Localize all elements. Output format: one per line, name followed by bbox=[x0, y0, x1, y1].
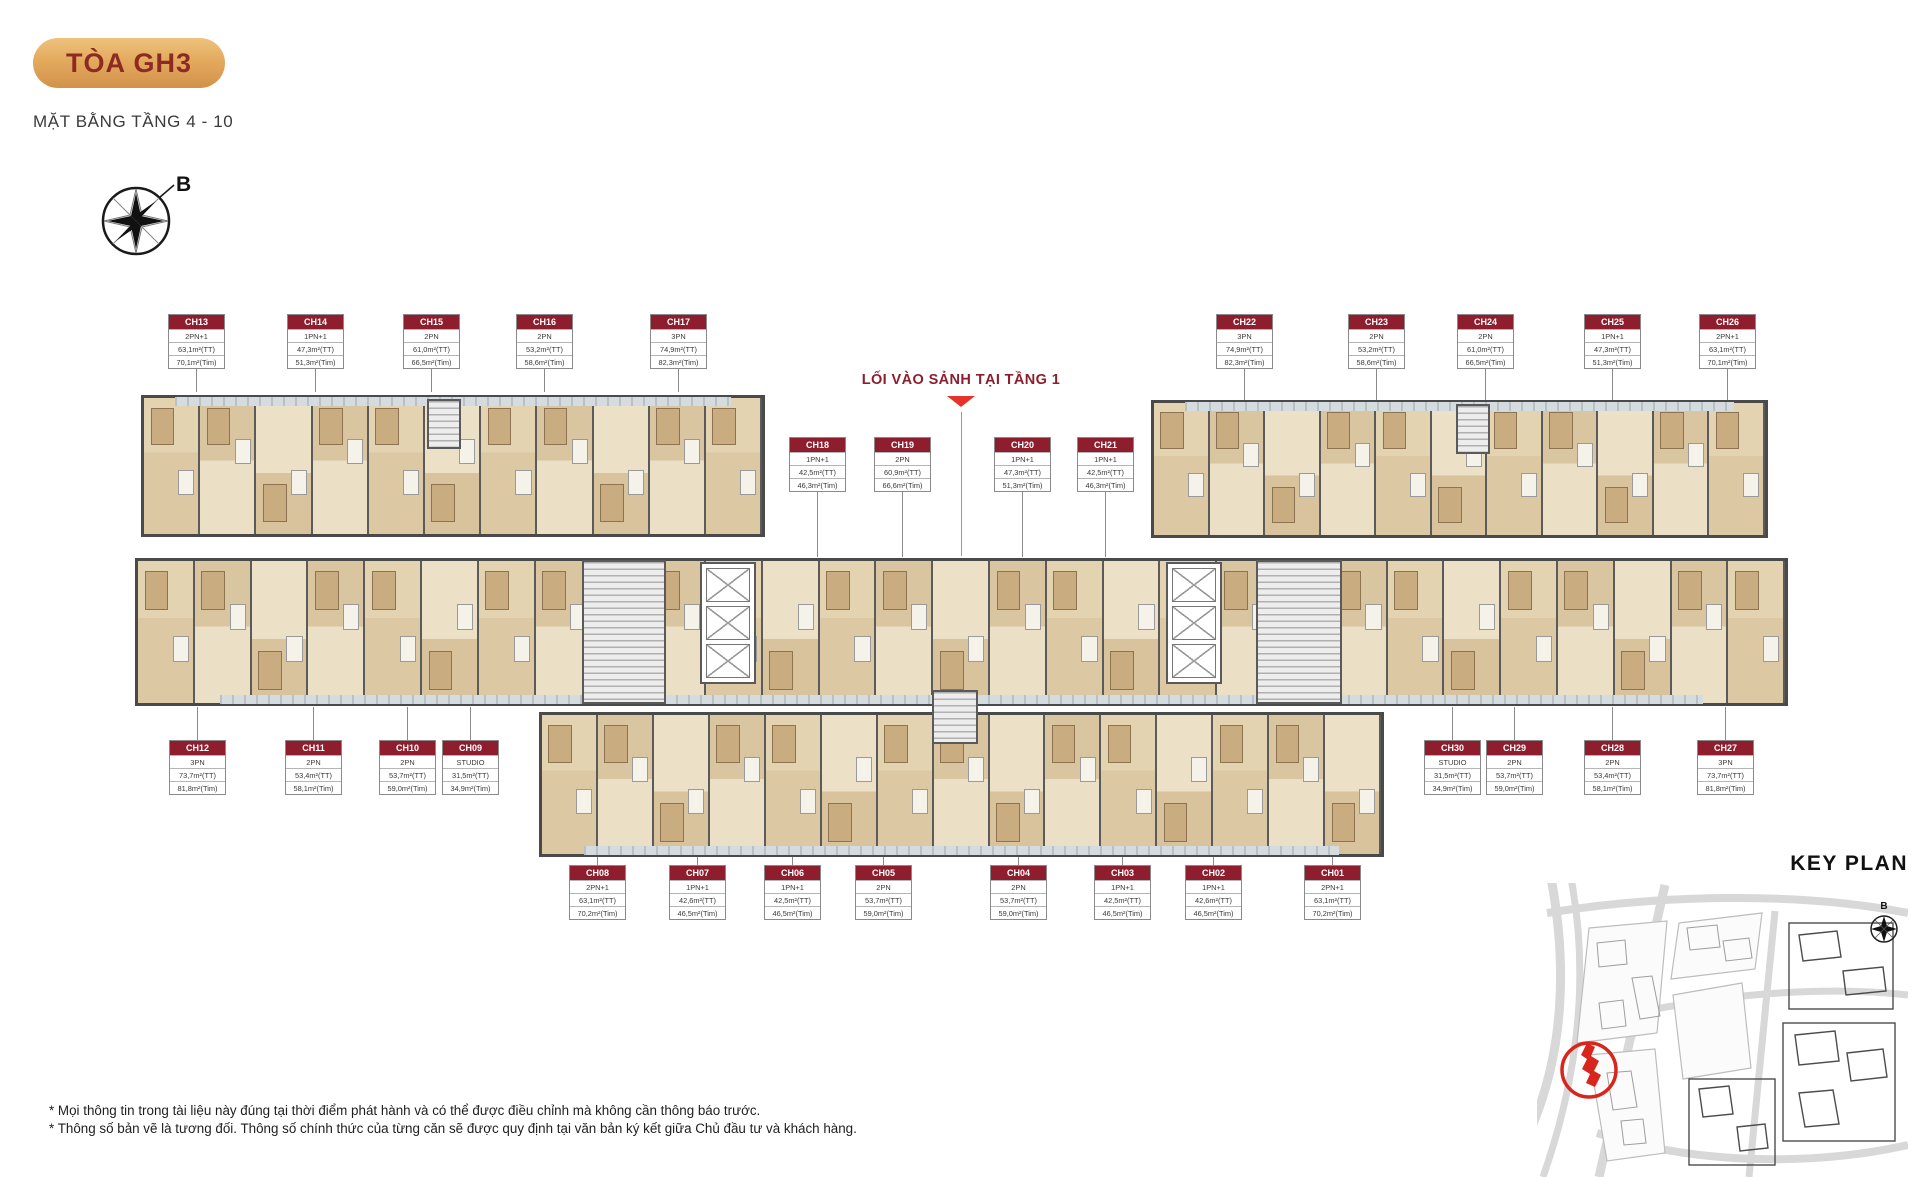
unit-type: 2PN+1 bbox=[1305, 880, 1360, 893]
unit-label-CH20: CH201PN+147,3m²(TT)51,3m²(Tim) bbox=[994, 437, 1051, 492]
unit-area-tim: 34,9m²(Tim) bbox=[443, 781, 498, 794]
unit-id: CH22 bbox=[1217, 315, 1272, 329]
unit-type: 1PN+1 bbox=[1078, 452, 1133, 465]
unit-area-tim: 58,6m²(Tim) bbox=[517, 355, 572, 368]
unit-connector-CH06 bbox=[792, 857, 793, 865]
unit-area-tt: 53,7m²(TT) bbox=[1487, 768, 1542, 781]
unit-area-tt: 47,3m²(TT) bbox=[288, 342, 343, 355]
unit-id: CH19 bbox=[875, 438, 930, 452]
unit-id: CH21 bbox=[1078, 438, 1133, 452]
unit-id: CH14 bbox=[288, 315, 343, 329]
unit-area-tt: 31,5m²(TT) bbox=[443, 768, 498, 781]
unit-id: CH07 bbox=[670, 866, 725, 880]
unit-area-tt: 47,3m²(TT) bbox=[995, 465, 1050, 478]
unit-id: CH20 bbox=[995, 438, 1050, 452]
unit-type: 2PN bbox=[875, 452, 930, 465]
unit-label-CH17: CH173PN74,9m²(TT)82,3m²(Tim) bbox=[650, 314, 707, 369]
unit-connector-CH12 bbox=[197, 707, 198, 740]
unit-area-tim: 34,9m²(Tim) bbox=[1425, 781, 1480, 794]
unit-area-tt: 42,6m²(TT) bbox=[670, 893, 725, 906]
unit-id: CH15 bbox=[404, 315, 459, 329]
unit-label-CH25: CH251PN+147,3m²(TT)51,3m²(Tim) bbox=[1584, 314, 1641, 369]
floor-plan-page: TÒA GH3 MẶT BẰNG TẦNG 4 - 10 B LỐI VÀO S… bbox=[0, 0, 1920, 1177]
unit-label-CH07: CH071PN+142,6m²(TT)46,5m²(Tim) bbox=[669, 865, 726, 920]
unit-type: 2PN+1 bbox=[169, 329, 224, 342]
unit-type: 2PN bbox=[286, 755, 341, 768]
unit-type: 1PN+1 bbox=[790, 452, 845, 465]
unit-area-tim: 59,0m²(Tim) bbox=[1487, 781, 1542, 794]
unit-label-CH10: CH102PN53,7m²(TT)59,0m²(Tim) bbox=[379, 740, 436, 795]
unit-label-CH27: CH273PN73,7m²(TT)81,8m²(Tim) bbox=[1697, 740, 1754, 795]
unit-type: 2PN+1 bbox=[570, 880, 625, 893]
unit-label-CH14: CH141PN+147,3m²(TT)51,3m²(Tim) bbox=[287, 314, 344, 369]
unit-area-tim: 70,1m²(Tim) bbox=[1700, 355, 1755, 368]
unit-id: CH09 bbox=[443, 741, 498, 755]
unit-id: CH11 bbox=[286, 741, 341, 755]
unit-label-CH01: CH012PN+163,1m²(TT)70,2m²(Tim) bbox=[1304, 865, 1361, 920]
unit-type: 2PN bbox=[380, 755, 435, 768]
unit-area-tt: 63,1m²(TT) bbox=[169, 342, 224, 355]
unit-id: CH29 bbox=[1487, 741, 1542, 755]
unit-area-tim: 81,8m²(Tim) bbox=[170, 781, 225, 794]
unit-area-tt: 60,9m²(TT) bbox=[875, 465, 930, 478]
unit-id: CH17 bbox=[651, 315, 706, 329]
unit-type: 1PN+1 bbox=[1095, 880, 1150, 893]
unit-area-tt: 53,7m²(TT) bbox=[991, 893, 1046, 906]
unit-area-tim: 59,0m²(Tim) bbox=[380, 781, 435, 794]
unit-id: CH24 bbox=[1458, 315, 1513, 329]
unit-area-tt: 42,5m²(TT) bbox=[765, 893, 820, 906]
unit-area-tim: 46,3m²(Tim) bbox=[790, 478, 845, 491]
unit-id: CH25 bbox=[1585, 315, 1640, 329]
unit-id: CH30 bbox=[1425, 741, 1480, 755]
unit-id: CH06 bbox=[765, 866, 820, 880]
unit-area-tim: 46,3m²(Tim) bbox=[1078, 478, 1133, 491]
unit-type: 2PN bbox=[517, 329, 572, 342]
unit-area-tt: 42,6m²(TT) bbox=[1186, 893, 1241, 906]
unit-area-tt: 53,7m²(TT) bbox=[380, 768, 435, 781]
unit-area-tt: 63,1m²(TT) bbox=[1305, 893, 1360, 906]
unit-type: 1PN+1 bbox=[1585, 329, 1640, 342]
unit-label-CH15: CH152PN61,0m²(TT)66,5m²(Tim) bbox=[403, 314, 460, 369]
unit-id: CH23 bbox=[1349, 315, 1404, 329]
unit-area-tim: 70,2m²(Tim) bbox=[570, 906, 625, 919]
unit-type: 3PN bbox=[1698, 755, 1753, 768]
unit-label-CH13: CH132PN+163,1m²(TT)70,1m²(Tim) bbox=[168, 314, 225, 369]
unit-area-tim: 58,1m²(Tim) bbox=[286, 781, 341, 794]
unit-area-tim: 59,0m²(Tim) bbox=[856, 906, 911, 919]
unit-label-CH02: CH021PN+142,6m²(TT)46,5m²(Tim) bbox=[1185, 865, 1242, 920]
unit-id: CH26 bbox=[1700, 315, 1755, 329]
unit-area-tt: 63,1m²(TT) bbox=[570, 893, 625, 906]
unit-connector-CH09 bbox=[470, 707, 471, 740]
unit-connector-CH20 bbox=[1022, 484, 1023, 557]
unit-label-CH24: CH242PN61,0m²(TT)66,5m²(Tim) bbox=[1457, 314, 1514, 369]
unit-type: 2PN bbox=[1585, 755, 1640, 768]
unit-id: CH01 bbox=[1305, 866, 1360, 880]
unit-type: STUDIO bbox=[1425, 755, 1480, 768]
unit-type: 2PN bbox=[404, 329, 459, 342]
unit-type: 2PN bbox=[856, 880, 911, 893]
unit-label-CH26: CH262PN+163,1m²(TT)70,1m²(Tim) bbox=[1699, 314, 1756, 369]
unit-connector-CH08 bbox=[597, 857, 598, 865]
unit-type: 1PN+1 bbox=[670, 880, 725, 893]
unit-area-tim: 46,5m²(Tim) bbox=[765, 906, 820, 919]
unit-connector-CH18 bbox=[817, 484, 818, 557]
unit-connector-CH28 bbox=[1612, 707, 1613, 740]
unit-label-CH29: CH292PN53,7m²(TT)59,0m²(Tim) bbox=[1486, 740, 1543, 795]
unit-type: 2PN bbox=[991, 880, 1046, 893]
unit-area-tt: 47,3m²(TT) bbox=[1585, 342, 1640, 355]
unit-area-tt: 53,2m²(TT) bbox=[517, 342, 572, 355]
unit-type: 2PN bbox=[1487, 755, 1542, 768]
unit-label-CH04: CH042PN53,7m²(TT)59,0m²(Tim) bbox=[990, 865, 1047, 920]
unit-id: CH27 bbox=[1698, 741, 1753, 755]
unit-label-CH09: CH09STUDIO31,5m²(TT)34,9m²(Tim) bbox=[442, 740, 499, 795]
unit-area-tt: 53,2m²(TT) bbox=[1349, 342, 1404, 355]
unit-area-tim: 81,8m²(Tim) bbox=[1698, 781, 1753, 794]
unit-label-CH08: CH082PN+163,1m²(TT)70,2m²(Tim) bbox=[569, 865, 626, 920]
unit-connector-CH01 bbox=[1332, 857, 1333, 865]
unit-label-CH30: CH30STUDIO31,5m²(TT)34,9m²(Tim) bbox=[1424, 740, 1481, 795]
unit-type: 1PN+1 bbox=[288, 329, 343, 342]
unit-id: CH16 bbox=[517, 315, 572, 329]
unit-label-CH23: CH232PN53,2m²(TT)58,6m²(Tim) bbox=[1348, 314, 1405, 369]
unit-type: 1PN+1 bbox=[765, 880, 820, 893]
unit-id: CH04 bbox=[991, 866, 1046, 880]
unit-area-tim: 51,3m²(Tim) bbox=[288, 355, 343, 368]
unit-id: CH12 bbox=[170, 741, 225, 755]
unit-area-tim: 46,5m²(Tim) bbox=[670, 906, 725, 919]
unit-connector-CH11 bbox=[313, 707, 314, 740]
unit-type: 3PN bbox=[651, 329, 706, 342]
unit-label-CH16: CH162PN53,2m²(TT)58,6m²(Tim) bbox=[516, 314, 573, 369]
unit-area-tim: 46,5m²(Tim) bbox=[1186, 906, 1241, 919]
unit-area-tt: 63,1m²(TT) bbox=[1700, 342, 1755, 355]
unit-label-CH18: CH181PN+142,5m²(TT)46,3m²(Tim) bbox=[789, 437, 846, 492]
unit-area-tt: 61,0m²(TT) bbox=[1458, 342, 1513, 355]
unit-type: 1PN+1 bbox=[1186, 880, 1241, 893]
unit-id: CH05 bbox=[856, 866, 911, 880]
unit-type: 3PN bbox=[170, 755, 225, 768]
unit-connector-CH29 bbox=[1514, 707, 1515, 740]
unit-connector-CH30 bbox=[1452, 707, 1453, 740]
unit-area-tt: 53,7m²(TT) bbox=[856, 893, 911, 906]
unit-area-tt: 74,9m²(TT) bbox=[651, 342, 706, 355]
unit-area-tim: 70,1m²(Tim) bbox=[169, 355, 224, 368]
unit-label-CH11: CH112PN53,4m²(TT)58,1m²(Tim) bbox=[285, 740, 342, 795]
unit-area-tim: 66,6m²(Tim) bbox=[875, 478, 930, 491]
unit-type: 2PN bbox=[1349, 329, 1404, 342]
unit-type: STUDIO bbox=[443, 755, 498, 768]
unit-area-tt: 42,5m²(TT) bbox=[790, 465, 845, 478]
unit-area-tt: 42,5m²(TT) bbox=[1095, 893, 1150, 906]
unit-id: CH13 bbox=[169, 315, 224, 329]
unit-connector-CH07 bbox=[697, 857, 698, 865]
unit-area-tt: 53,4m²(TT) bbox=[286, 768, 341, 781]
unit-label-CH19: CH192PN60,9m²(TT)66,6m²(Tim) bbox=[874, 437, 931, 492]
unit-area-tim: 59,0m²(Tim) bbox=[991, 906, 1046, 919]
unit-area-tim: 66,5m²(Tim) bbox=[404, 355, 459, 368]
unit-label-CH28: CH282PN53,4m²(TT)58,1m²(Tim) bbox=[1584, 740, 1641, 795]
unit-area-tim: 51,3m²(Tim) bbox=[995, 478, 1050, 491]
unit-connector-CH05 bbox=[883, 857, 884, 865]
unit-area-tt: 42,5m²(TT) bbox=[1078, 465, 1133, 478]
unit-id: CH08 bbox=[570, 866, 625, 880]
unit-label-CH05: CH052PN53,7m²(TT)59,0m²(Tim) bbox=[855, 865, 912, 920]
unit-type: 3PN bbox=[1217, 329, 1272, 342]
unit-area-tt: 73,7m²(TT) bbox=[1698, 768, 1753, 781]
unit-id: CH03 bbox=[1095, 866, 1150, 880]
unit-connector-CH04 bbox=[1018, 857, 1019, 865]
unit-connector-CH03 bbox=[1122, 857, 1123, 865]
unit-connector-CH21 bbox=[1105, 484, 1106, 557]
unit-area-tt: 31,5m²(TT) bbox=[1425, 768, 1480, 781]
unit-area-tt: 74,9m²(TT) bbox=[1217, 342, 1272, 355]
unit-connector-CH19 bbox=[902, 484, 903, 557]
unit-id: CH10 bbox=[380, 741, 435, 755]
unit-area-tt: 73,7m²(TT) bbox=[170, 768, 225, 781]
unit-area-tt: 53,4m²(TT) bbox=[1585, 768, 1640, 781]
unit-connector-CH02 bbox=[1213, 857, 1214, 865]
unit-labels-layer: CH132PN+163,1m²(TT)70,1m²(Tim)CH141PN+14… bbox=[0, 0, 1920, 1177]
unit-area-tim: 82,3m²(Tim) bbox=[1217, 355, 1272, 368]
unit-area-tim: 82,3m²(Tim) bbox=[651, 355, 706, 368]
unit-type: 2PN+1 bbox=[1700, 329, 1755, 342]
unit-connector-CH10 bbox=[407, 707, 408, 740]
unit-area-tim: 70,2m²(Tim) bbox=[1305, 906, 1360, 919]
unit-label-CH03: CH031PN+142,5m²(TT)46,5m²(Tim) bbox=[1094, 865, 1151, 920]
unit-id: CH28 bbox=[1585, 741, 1640, 755]
unit-area-tim: 51,3m²(Tim) bbox=[1585, 355, 1640, 368]
unit-id: CH18 bbox=[790, 438, 845, 452]
unit-area-tim: 66,5m²(Tim) bbox=[1458, 355, 1513, 368]
unit-connector-CH27 bbox=[1725, 707, 1726, 740]
unit-area-tim: 46,5m²(Tim) bbox=[1095, 906, 1150, 919]
unit-label-CH22: CH223PN74,9m²(TT)82,3m²(Tim) bbox=[1216, 314, 1273, 369]
unit-label-CH06: CH061PN+142,5m²(TT)46,5m²(Tim) bbox=[764, 865, 821, 920]
unit-type: 1PN+1 bbox=[995, 452, 1050, 465]
unit-id: CH02 bbox=[1186, 866, 1241, 880]
unit-label-CH12: CH123PN73,7m²(TT)81,8m²(Tim) bbox=[169, 740, 226, 795]
unit-area-tim: 58,6m²(Tim) bbox=[1349, 355, 1404, 368]
unit-type: 2PN bbox=[1458, 329, 1513, 342]
unit-label-CH21: CH211PN+142,5m²(TT)46,3m²(Tim) bbox=[1077, 437, 1134, 492]
unit-area-tim: 58,1m²(Tim) bbox=[1585, 781, 1640, 794]
unit-area-tt: 61,0m²(TT) bbox=[404, 342, 459, 355]
